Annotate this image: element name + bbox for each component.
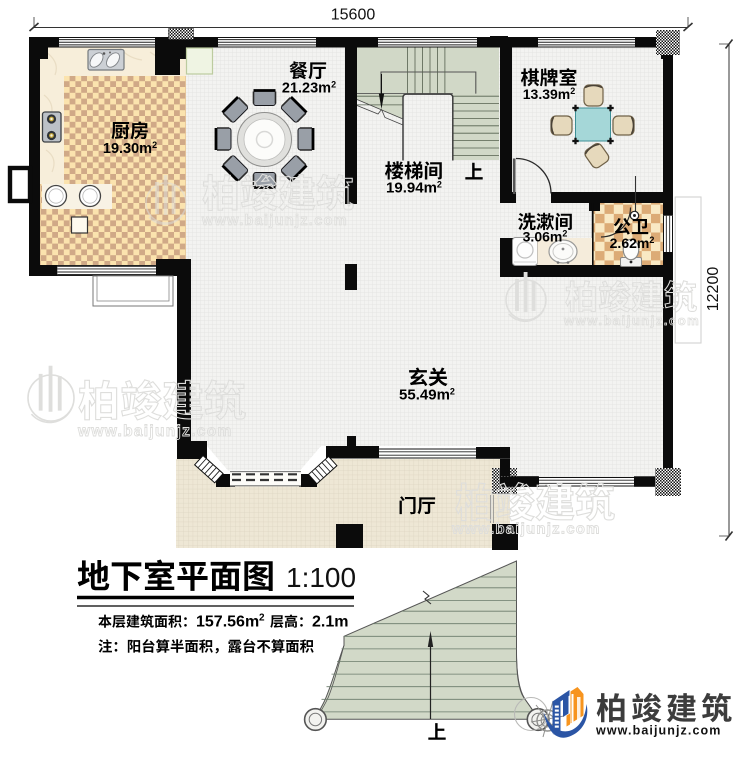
svg-text:www.baijunjz.com: www.baijunjz.com: [451, 521, 601, 538]
svg-text:1:100: 1:100: [286, 562, 356, 593]
svg-text:157.56m: 157.56m: [196, 614, 259, 631]
svg-text:www.baijunjz.com: www.baijunjz.com: [595, 724, 721, 738]
svg-text:55.49m2: 55.49m2: [399, 387, 455, 404]
svg-text:15600: 15600: [331, 7, 376, 24]
svg-text:3.06m2: 3.06m2: [523, 229, 568, 245]
svg-text:www.baijunjz.com: www.baijunjz.com: [77, 423, 233, 440]
svg-text:2.62m2: 2.62m2: [610, 235, 655, 251]
svg-text:12200: 12200: [705, 267, 722, 312]
svg-text:www.baijunjz.com: www.baijunjz.com: [201, 213, 348, 229]
svg-text:2.1m: 2.1m: [312, 614, 348, 631]
svg-text:21.23m2: 21.23m2: [282, 80, 336, 97]
svg-text:19.30m2: 19.30m2: [103, 140, 157, 157]
svg-text:13.39m2: 13.39m2: [523, 86, 576, 102]
svg-text:www.baijunjz.com: www.baijunjz.com: [563, 313, 700, 328]
svg-text:2: 2: [259, 613, 265, 624]
svg-text:19.94m2: 19.94m2: [386, 180, 442, 197]
